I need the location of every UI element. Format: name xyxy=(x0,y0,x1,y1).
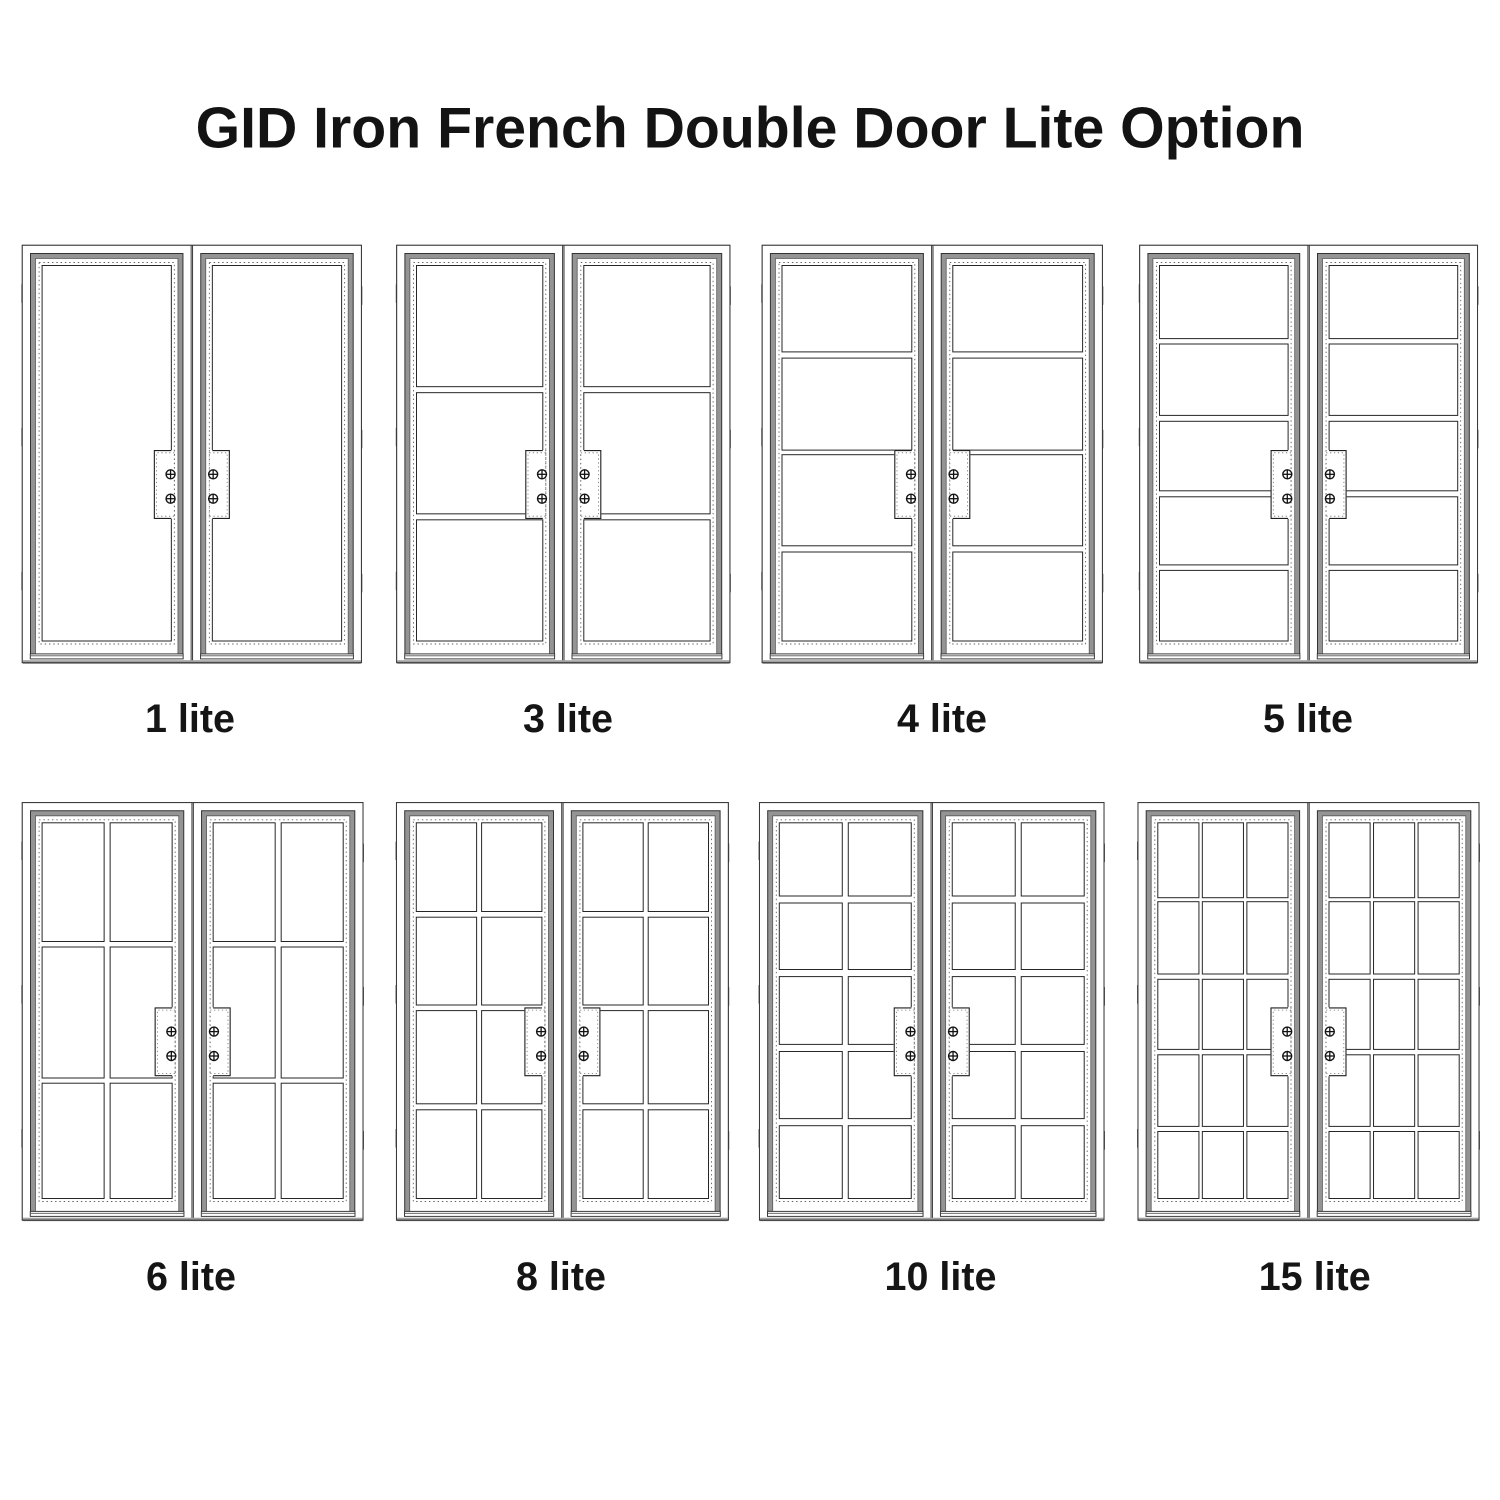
svg-text:15 lite: 15 lite xyxy=(1259,1255,1371,1299)
svg-text:10 lite: 10 lite xyxy=(885,1255,997,1299)
svg-text:6 lite: 6 lite xyxy=(146,1255,236,1299)
svg-text:GID Iron French Double Door Li: GID Iron French Double Door Lite Option xyxy=(196,97,1305,161)
svg-text:1 lite: 1 lite xyxy=(145,697,235,741)
svg-text:4 lite: 4 lite xyxy=(897,697,987,741)
svg-text:5 lite: 5 lite xyxy=(1263,697,1353,741)
svg-text:3 lite: 3 lite xyxy=(523,697,613,741)
svg-text:8 lite: 8 lite xyxy=(516,1255,606,1299)
